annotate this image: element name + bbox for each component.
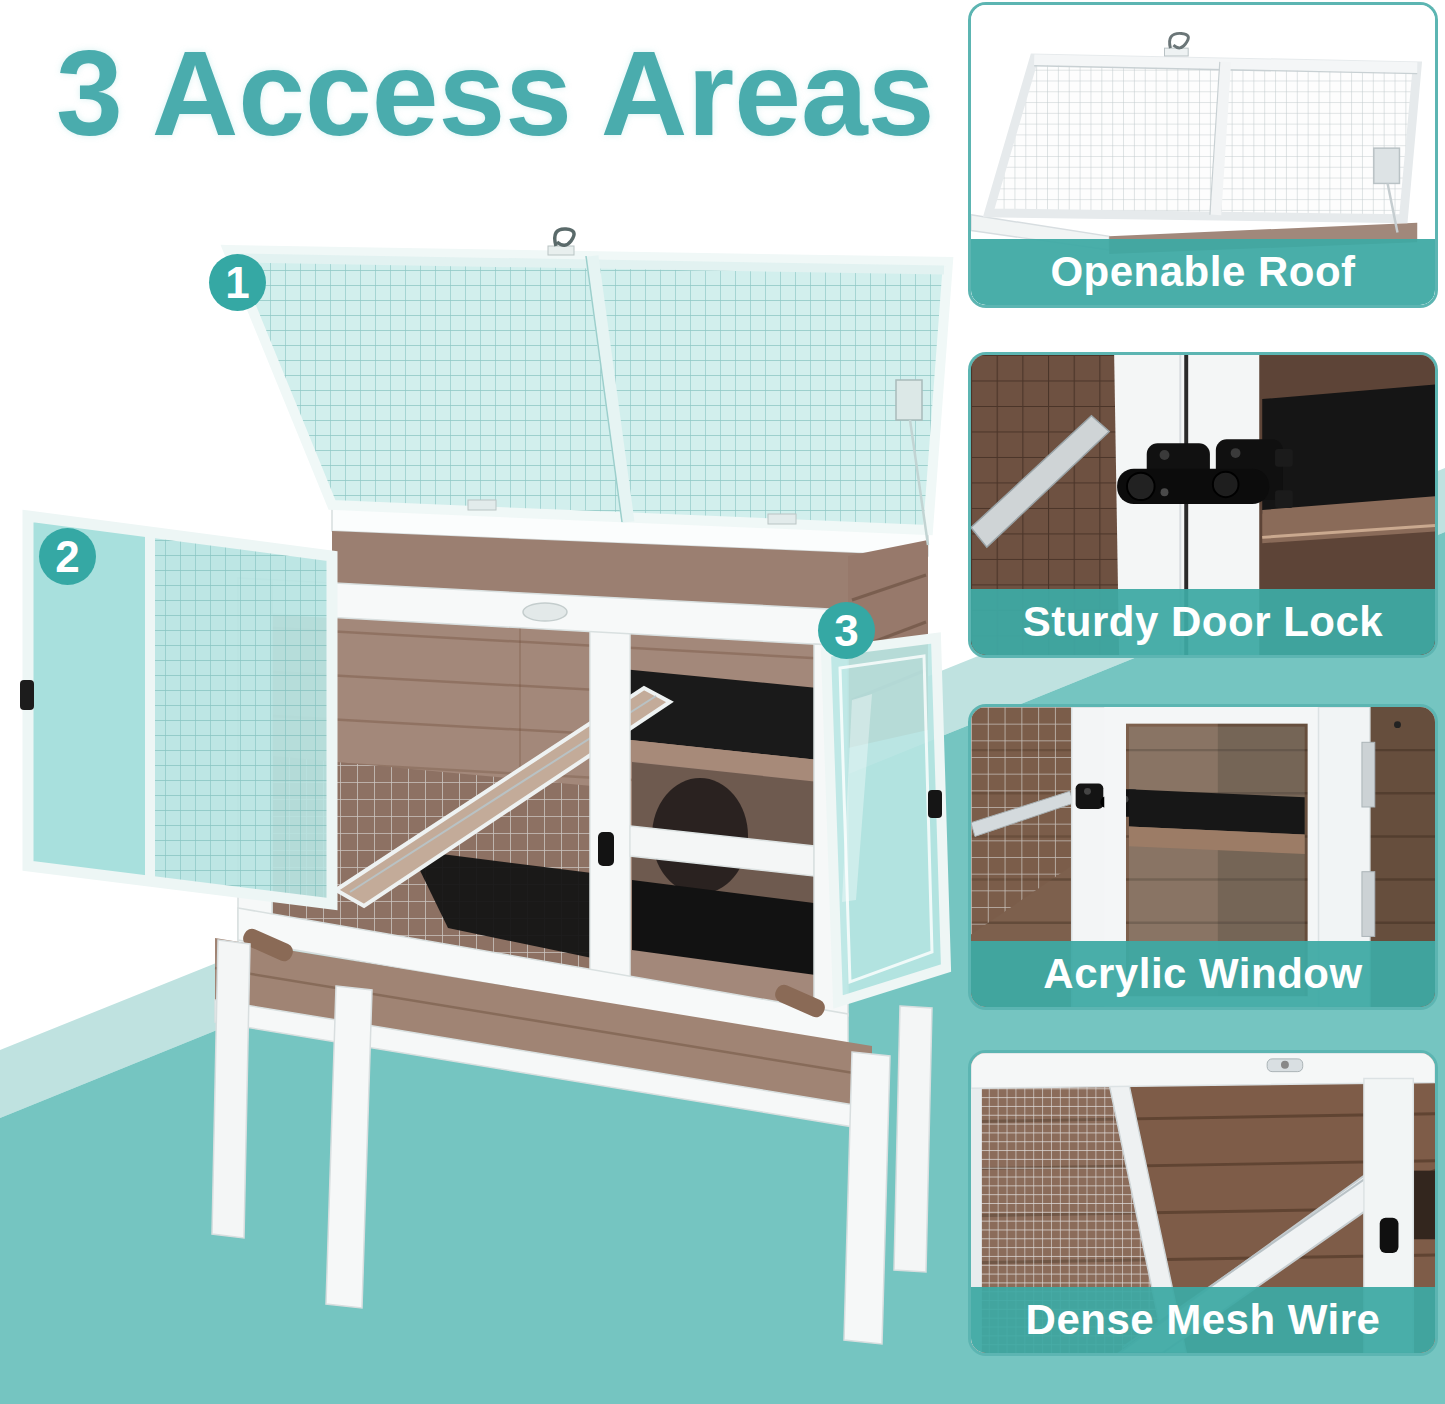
feature-card-acrylic-window: Acrylic Window [968, 704, 1438, 1010]
card-caption: Acrylic Window [971, 941, 1435, 1007]
card-caption: Dense Mesh Wire [971, 1287, 1435, 1353]
card-caption: Openable Roof [971, 239, 1435, 305]
side-door-latch [928, 790, 942, 818]
divider-latch [598, 832, 614, 866]
card-caption: Sturdy Door Lock [971, 589, 1435, 655]
callout-badge-2: 2 [39, 528, 96, 585]
lid-latch [896, 380, 922, 420]
callout-badge-3: 3 [818, 602, 875, 659]
open-side-door [826, 638, 946, 1002]
roof-hook-icon [555, 229, 574, 246]
hutch-photo-illustration [0, 0, 965, 1404]
feature-card-sturdy-door-lock: Sturdy Door Lock [968, 352, 1438, 658]
callout-badge-1: 1 [209, 254, 266, 311]
open-roof-lid [228, 229, 948, 545]
feature-card-dense-mesh-wire: Dense Mesh Wire [968, 1050, 1438, 1356]
callout-number-1: 1 [225, 258, 249, 308]
mesh-door-latch [1380, 1218, 1399, 1253]
front-door-latch [20, 680, 34, 710]
feature-card-openable-roof: Openable Roof [968, 2, 1438, 308]
brand-plate [523, 603, 567, 621]
page-title: 3 Access Areas [56, 30, 934, 156]
callout-number-3: 3 [834, 606, 858, 656]
callout-number-2: 2 [55, 532, 79, 582]
lid-hinge-right [768, 514, 796, 524]
lid-hinge-left [468, 500, 496, 510]
product-infographic: 3 Access Areas [0, 0, 1445, 1404]
